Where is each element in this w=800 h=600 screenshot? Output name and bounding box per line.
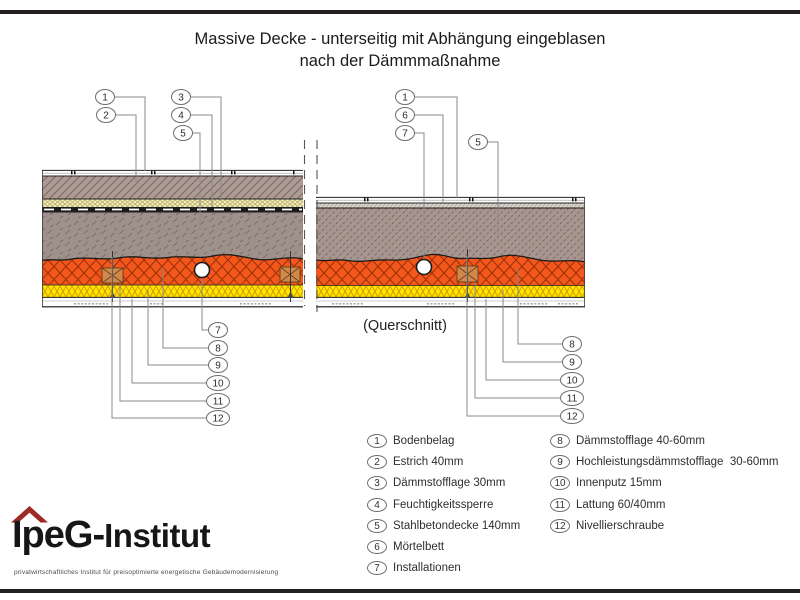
layer-bodenbelag (316, 197, 585, 203)
layer-stahlbetondecke-texture (42, 212, 303, 261)
layer-hochleistungsdaemmstoff-hatch (42, 285, 303, 297)
layer-hochleistungsdaemmstoff-hatch (316, 286, 585, 298)
legend-label: Mörtelbett (393, 541, 444, 553)
querschnitt-label: (Querschnitt) (335, 318, 475, 334)
callout-number-4: 4 (178, 110, 184, 121)
callout-number-7: 7 (215, 325, 221, 336)
legend-item-4: 4Feuchtigkeitssperre (367, 494, 520, 515)
callout-number-3: 3 (178, 92, 184, 103)
callout-number-1: 1 (402, 92, 408, 103)
legend-item-9: 9Hochleistungsdämmstofflage 30-60mm (550, 451, 778, 472)
callout-number-7: 7 (402, 128, 408, 139)
callout-number-9: 9 (569, 357, 575, 368)
legend-number-badge: 12 (550, 519, 570, 533)
layer-stahlbetondecke-texture (316, 208, 585, 262)
callout-number-8: 8 (215, 343, 221, 354)
legend-item-11: 11Lattung 60/40mm (550, 494, 778, 515)
callout-number-8: 8 (569, 339, 575, 350)
callout-number-11: 11 (213, 396, 224, 407)
callout-number-9: 9 (215, 360, 221, 371)
section-left (42, 170, 303, 306)
legend-number-badge: 9 (550, 455, 570, 469)
legend-number-badge: 10 (550, 476, 570, 490)
leader-line-10 (132, 299, 208, 383)
legend-label: Hochleistungsdämmstofflage 30-60mm (576, 456, 778, 468)
section-right (316, 197, 585, 306)
legend-label: Innenputz 15mm (576, 477, 662, 489)
leader-line-6 (414, 115, 443, 204)
legend-label: Bodenbelag (393, 435, 454, 447)
callout-number-10: 10 (212, 378, 224, 389)
leader-line-10 (486, 299, 561, 380)
legend-item-7: 7Installationen (367, 558, 520, 579)
legend-label: Feuchtigkeitssperre (393, 499, 493, 511)
logo: IpeG-Institut (10, 503, 50, 524)
plank-joint-ticks (71, 171, 295, 175)
callout-number-5: 5 (180, 128, 186, 139)
layer-innenputz (316, 297, 585, 306)
legend-number-badge: 7 (367, 561, 387, 575)
logo-text-sub: Institut (104, 517, 210, 554)
legend-item-5: 5Stahlbetondecke 140mm (367, 515, 520, 536)
leader-line-1 (114, 97, 145, 171)
legend-label: Estrich 40mm (393, 456, 463, 468)
legend-number-badge: 3 (367, 476, 387, 490)
callout-number-11: 11 (567, 393, 578, 404)
legend-number-badge: 11 (550, 498, 570, 512)
layer-innenputz (42, 297, 303, 306)
logo-text-main: IpeG- (12, 514, 104, 556)
legend-label: Nivellierschraube (576, 520, 664, 532)
legend-label: Lattung 60/40mm (576, 499, 666, 511)
bottom-frame-bar (0, 589, 800, 593)
installation-pipe (195, 263, 210, 278)
legend-number-badge: 5 (367, 519, 387, 533)
callout-number-12: 12 (212, 413, 224, 424)
callout-number-5: 5 (475, 137, 481, 148)
callout-number-2: 2 (103, 110, 109, 121)
legend-item-10: 10Innenputz 15mm (550, 473, 778, 494)
legend-number-badge: 4 (367, 498, 387, 512)
legend-item-6: 6Mörtelbett (367, 536, 520, 557)
legend-label: Dämmstofflage 30mm (393, 477, 505, 489)
legend-item-1: 1Bodenbelag (367, 430, 520, 451)
legend-column-2: 8Dämmstofflage 40-60mm9Hochleistungsdämm… (550, 430, 778, 536)
legend-item-12: 12Nivellierschraube (550, 515, 778, 536)
leader-line-1 (414, 97, 457, 198)
legend-item-2: 2Estrich 40mm (367, 451, 520, 472)
legend-label: Dämmstofflage 40-60mm (576, 435, 705, 447)
callout-number-12: 12 (566, 411, 578, 422)
plank-joint-ticks (364, 198, 577, 202)
callout-number-10: 10 (566, 375, 578, 386)
legend-label: Installationen (393, 562, 461, 574)
callout-number-1: 1 (102, 92, 108, 103)
layer-moertelbett-hatch (316, 203, 585, 208)
legend-item-3: 3Dämmstofflage 30mm (367, 473, 520, 494)
legend-number-badge: 6 (367, 540, 387, 554)
layer-estrich-hatch (42, 176, 303, 199)
installation-pipe (417, 260, 432, 275)
callout-number-6: 6 (402, 110, 408, 121)
layer-daemmstofflage-30-hatch (42, 199, 303, 207)
legend-number-badge: 8 (550, 434, 570, 448)
legend-number-badge: 2 (367, 455, 387, 469)
page: Massive Decke - unterseitig mit Abhängun… (0, 0, 800, 600)
legend-item-8: 8Dämmstofflage 40-60mm (550, 430, 778, 451)
layer-bodenbelag (42, 170, 303, 176)
logo-wordmark: IpeG-Institut (12, 514, 210, 557)
logo-tagline: privatwirtschaftliches Institut für prei… (14, 569, 278, 576)
legend-column-1: 1Bodenbelag2Estrich 40mm3Dämmstofflage 3… (367, 430, 520, 579)
legend-label: Stahlbetondecke 140mm (393, 520, 520, 532)
legend-number-badge: 1 (367, 434, 387, 448)
